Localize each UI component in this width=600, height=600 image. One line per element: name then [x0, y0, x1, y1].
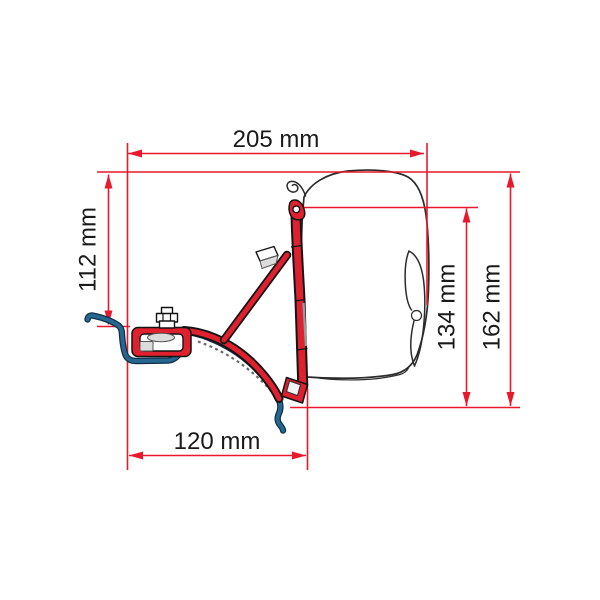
hook-pivot-hole	[293, 206, 300, 213]
arrowhead-down-icon	[463, 392, 471, 406]
arrowhead-up-icon	[507, 174, 515, 188]
adapter-bracket	[132, 200, 308, 403]
awning-case-body	[301, 170, 428, 378]
arrowhead-left-icon	[129, 452, 143, 460]
awning-case-outline	[287, 170, 429, 380]
arrowhead-up-icon	[105, 175, 113, 189]
rail-clamp-plate	[148, 333, 175, 341]
technical-diagram: 205 mm 112 mm 134 mm 162 mm	[0, 0, 600, 600]
dimension-label-total-width: 205 mm	[233, 126, 320, 153]
curved-arm	[184, 331, 279, 399]
mounting-bolt	[157, 308, 178, 329]
arrowhead-down-icon	[507, 392, 515, 406]
arrowhead-up-icon	[463, 209, 471, 223]
rail-mount	[132, 328, 191, 357]
dimension-label-case-height: 134 mm	[434, 264, 461, 351]
arrowhead-right-icon	[292, 452, 306, 460]
awning-hook	[287, 181, 305, 196]
diagram-canvas: 205 mm 112 mm 134 mm 162 mm	[0, 0, 600, 600]
arrowhead-left-icon	[128, 150, 142, 158]
dimension-label-total-height: 162 mm	[479, 264, 506, 351]
rail-slider-block	[140, 342, 153, 352]
dimension-label-left-height: 112 mm	[75, 207, 102, 292]
dimension-label-bottom-width: 120 mm	[174, 428, 261, 455]
arrowhead-right-icon	[410, 150, 424, 158]
bolt-washer	[160, 321, 175, 328]
diagonal-strut	[224, 255, 287, 340]
curved-arm-casing	[184, 331, 279, 399]
